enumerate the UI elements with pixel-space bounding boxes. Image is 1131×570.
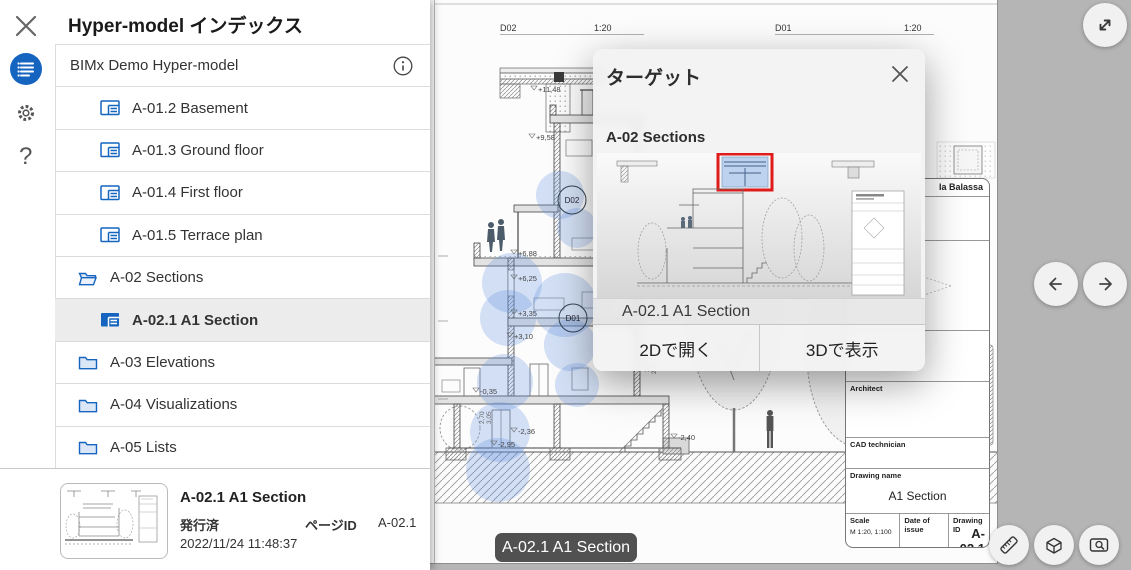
sidebar: Hyper-model インデックス ? BIMx Demo Hyper-mod… (0, 0, 430, 570)
terrace-figures (487, 219, 505, 252)
item-label: A-05 Lists (110, 439, 177, 456)
list-item-a-02-sections[interactable]: A-02 Sections (55, 257, 430, 299)
svg-text:+6,25: +6,25 (518, 274, 537, 283)
list-item-a-01-2[interactable]: A-01.2 Basement (55, 87, 430, 129)
drawing-thumbnail[interactable] (60, 483, 168, 559)
page-id-label: ページID (305, 515, 357, 534)
detail-d01-scale: 1:20 (904, 23, 922, 33)
folder-icon (78, 439, 98, 455)
callout-d01: D01 (566, 314, 581, 323)
list-item-a-01-5[interactable]: A-01.5 Terrace plan (55, 215, 430, 257)
svg-text:-2,95: -2,95 (498, 440, 515, 449)
item-label: A-02 Sections (110, 269, 203, 286)
show-3d-button[interactable]: 3Dで表示 (760, 325, 926, 371)
page-id-value: A-02.1 (378, 515, 416, 530)
list-item-a-02-1-selected[interactable]: A-02.1 A1 Section (55, 299, 430, 341)
item-label: A-04 Visualizations (110, 396, 237, 413)
scale-value: M 1:20, 1:100 (850, 529, 892, 536)
screen-magnifier-icon (1088, 534, 1110, 556)
thumbnail-sketch (61, 484, 165, 556)
person-figure (767, 410, 774, 448)
detail-d02-scale: 1:20 (594, 23, 612, 33)
detail-d01-label: D01 (775, 23, 792, 33)
index-list-button[interactable] (10, 53, 42, 85)
help-button[interactable]: ? (19, 143, 32, 171)
architect-label: Architect (850, 384, 883, 393)
folder-icon (78, 354, 98, 370)
arrow-left-icon (1045, 273, 1067, 295)
svg-text:2,70: 2,70 (479, 411, 486, 424)
scale-label: Scale (850, 516, 870, 525)
zoom-region-button[interactable] (1079, 525, 1119, 565)
dialog-title: ターゲット (606, 63, 701, 90)
svg-text:+11,48: +11,48 (538, 85, 561, 94)
preview-caption: A-02.1 A1 Section (593, 298, 925, 324)
close-dialog-button[interactable] (889, 63, 911, 85)
dialog-actions: 2Dで開く 3Dで表示 (593, 324, 925, 371)
ruler-icon (998, 534, 1020, 556)
publish-status: 発行済 (180, 518, 219, 533)
next-button[interactable] (1083, 262, 1127, 306)
list-item-a-01-3[interactable]: A-01.3 Ground floor (55, 130, 430, 172)
info-icon[interactable] (392, 55, 414, 77)
arrow-right-icon (1094, 273, 1116, 295)
fullscreen-button[interactable] (1083, 3, 1127, 47)
svg-text:+9,58: +9,58 (536, 133, 555, 142)
svg-text:-2,40: -2,40 (678, 433, 695, 442)
sidebar-title: Hyper-model インデックス (68, 11, 303, 38)
root-model-label: BIMx Demo Hyper-model (70, 57, 238, 74)
item-label: A-03 Elevations (110, 354, 215, 371)
svg-text:+6,88: +6,88 (518, 249, 537, 258)
list-item-a-04[interactable]: A-04 Visualizations (55, 384, 430, 426)
settings-gear-button[interactable] (13, 100, 39, 126)
date-label: Date of issue (904, 516, 948, 534)
selected-drawing-title: A-02.1 A1 Section (180, 489, 306, 506)
item-label: A-01.4 First floor (132, 184, 243, 201)
fullscreen-icon (1094, 14, 1116, 36)
list-item-root-model[interactable]: BIMx Demo Hyper-model (55, 45, 430, 87)
target-dialog: ターゲット A-02 Sections (593, 49, 925, 371)
drawing-icon (100, 142, 120, 158)
drawing-id-value: A-02.1 (949, 526, 985, 548)
drawing-icon (100, 100, 120, 116)
view-3d-button[interactable] (1034, 525, 1074, 565)
hyper-model-index-list: BIMx Demo Hyper-model A-01.2 Basement A-… (55, 44, 430, 469)
open-2d-button[interactable]: 2Dで開く (593, 325, 760, 371)
measure-button[interactable] (989, 525, 1029, 565)
drawing-name-label: Drawing name (850, 471, 901, 480)
svg-text:3,05: 3,05 (486, 411, 493, 424)
dialog-group-label: A-02 Sections (606, 129, 705, 146)
item-label: A-01.3 Ground floor (132, 142, 264, 159)
selected-drawing-meta: 発行済 ページID A-02.1 (180, 515, 420, 534)
callout-d02: D02 (565, 196, 580, 205)
selected-drawing-panel: A-02.1 A1 Section 発行済 ページID A-02.1 2022/… (0, 468, 430, 570)
list-item-a-01-4[interactable]: A-01.4 First floor (55, 172, 430, 214)
preview-sketch (597, 153, 921, 298)
model-cube-icon (1043, 534, 1065, 556)
svg-text:-2,36: -2,36 (518, 427, 535, 436)
folder-icon (78, 397, 98, 413)
item-label: A-01.2 Basement (132, 100, 248, 117)
bimx-app: D02 1:20 D01 1:20 (0, 0, 1131, 570)
publish-timestamp: 2022/11/24 11:48:37 (180, 536, 297, 551)
folder-open-icon (78, 270, 98, 286)
svg-text:-0,35: -0,35 (480, 387, 497, 396)
drawing-name: A1 Section (846, 489, 989, 503)
drawing-icon (100, 227, 120, 243)
drawing-preview[interactable] (597, 153, 921, 298)
detail-d02-label: D02 (500, 23, 517, 33)
svg-text:+3,35: +3,35 (518, 309, 537, 318)
cad-technician-label: CAD technician (850, 440, 905, 449)
drawing-name-badge: A-02.1 A1 Section (495, 533, 637, 562)
list-item-a-03[interactable]: A-03 Elevations (55, 342, 430, 384)
item-label: A-01.5 Terrace plan (132, 227, 263, 244)
item-label: A-02.1 A1 Section (132, 312, 258, 329)
sheet-edge-line (434, 0, 435, 563)
list-item-a-05[interactable]: A-05 Lists (55, 427, 430, 469)
previous-button[interactable] (1034, 262, 1078, 306)
svg-text:+3,10: +3,10 (514, 332, 533, 341)
drawing-selected-icon (100, 312, 120, 328)
close-sidebar-button[interactable] (13, 13, 39, 39)
drawing-icon (100, 185, 120, 201)
